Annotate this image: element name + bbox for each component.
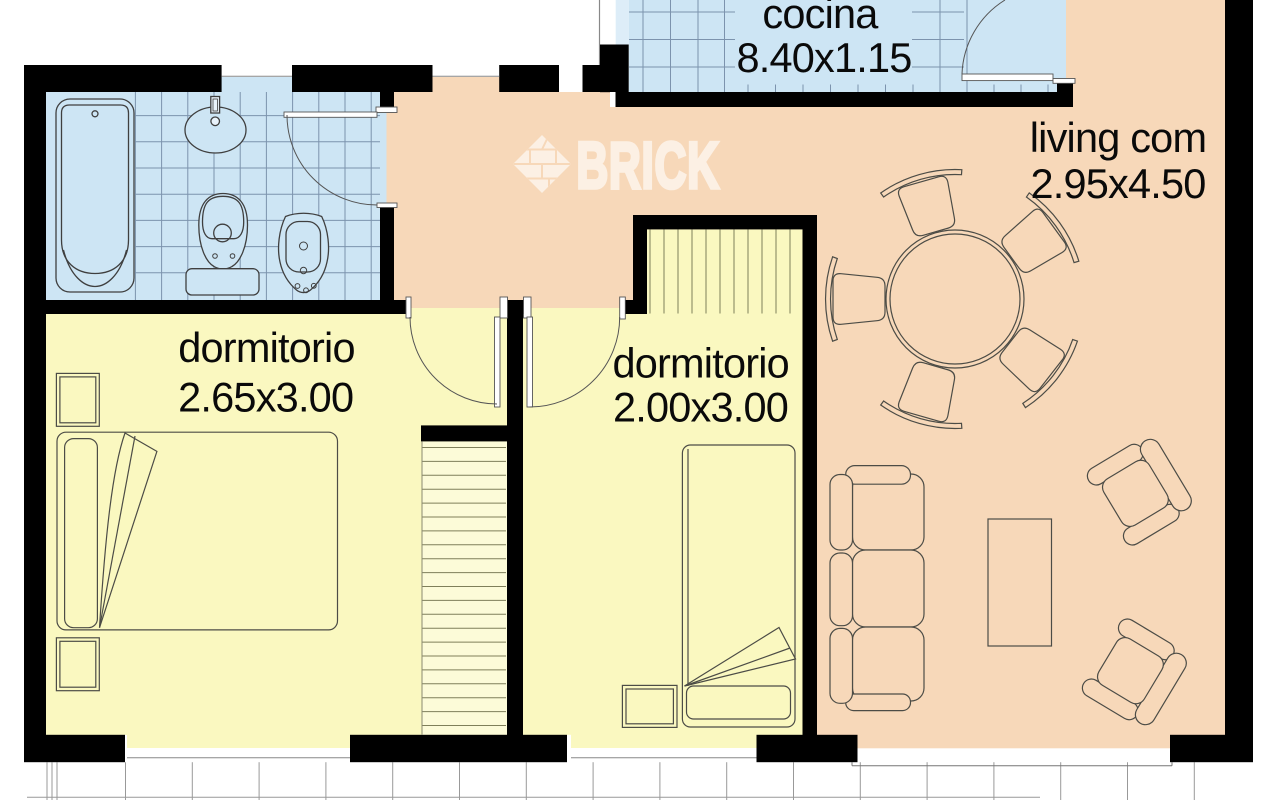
svg-text:2.95x4.50: 2.95x4.50 — [1030, 160, 1205, 207]
svg-text:2.65x3.00: 2.65x3.00 — [178, 374, 353, 421]
svg-text:BRICK: BRICK — [576, 128, 719, 202]
svg-text:2.00x3.00: 2.00x3.00 — [613, 384, 788, 431]
svg-text:dormitorio: dormitorio — [612, 340, 789, 387]
svg-text:8.40x1.15: 8.40x1.15 — [736, 34, 911, 81]
svg-text:cocina: cocina — [762, 0, 879, 37]
svg-text:dormitorio: dormitorio — [178, 324, 355, 371]
svg-text:living com: living com — [1030, 114, 1207, 161]
